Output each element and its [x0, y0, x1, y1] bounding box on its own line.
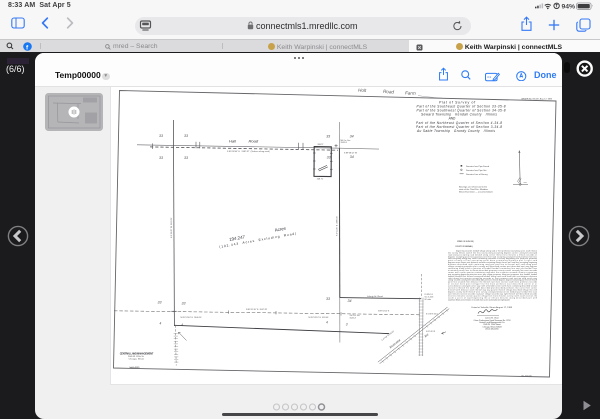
- svg-text:Denotes Iron Pipe Found: Denotes Iron Pipe Found: [466, 165, 490, 168]
- svg-text:Dated at Yorkville, Illinois: Dated at Yorkville, Illinois August 17, …: [472, 306, 513, 309]
- svg-text:4: 4: [326, 320, 328, 324]
- svg-text:33: 33: [184, 134, 188, 138]
- svg-text:33: 33: [184, 156, 188, 160]
- svg-text:Illinois East Zone — assumed d: Illinois East Zone — assumed datum: [459, 191, 493, 194]
- svg-text:STATE OF ILLINOIS ): STATE OF ILLINOIS ): [457, 240, 474, 243]
- svg-text:4: 4: [181, 323, 183, 327]
- svg-text:34: 34: [348, 299, 352, 303]
- svg-text:N 0°06'40" W 2643.36': N 0°06'40" W 2643.36': [171, 217, 173, 238]
- svg-text:33-35-8: 33-35-8: [341, 142, 347, 144]
- svg-text:COUNTY OF KENDALL ): COUNTY OF KENDALL ): [455, 245, 473, 248]
- svg-text:4: 4: [160, 321, 162, 325]
- svg-text:3: 3: [346, 323, 348, 327]
- svg-text:33: 33: [158, 301, 162, 305]
- svg-text:road more illinois acres minut: road more illinois acres minutes or seco…: [448, 298, 510, 301]
- svg-text:S 47°40' E 369.52': S 47°40' E 369.52': [381, 330, 395, 342]
- svg-text:CENTRAL LAND MANAGEMENT: CENTRAL LAND MANAGEMENT: [120, 351, 154, 355]
- svg-text:34-35-8: 34-35-8: [350, 317, 356, 319]
- svg-text:No. 83-105: No. 83-105: [522, 375, 533, 377]
- svg-text:Denotes Line of Survey: Denotes Line of Survey: [466, 173, 489, 176]
- svg-text:N 89°53'10" E: N 89°53'10" E: [378, 311, 390, 313]
- svg-text:34: 34: [350, 155, 354, 159]
- svg-text:34: 34: [350, 135, 354, 139]
- svg-text:208.71': 208.71': [317, 179, 324, 181]
- svg-text:Hall: Hall: [229, 138, 236, 143]
- svg-text:ORDER No. 83-105 Aug. 17, 198: ORDER No. 83-105 Aug. 17, 1983: [521, 98, 553, 101]
- svg-text:S 89°58'00" E 2687.87' (Sur: S 89°58'00" E 2687.87' (Surface along ro…: [227, 150, 270, 153]
- svg-text:Road: Road: [249, 139, 259, 144]
- svg-text:2049 W. 111th St.: 2049 W. 111th St.: [128, 355, 144, 358]
- svg-text:Seward Township Kendall Coun: Seward Township Kendall County Illinois: [421, 113, 497, 117]
- svg-text:N 89°53'10" E 493.06': N 89°53'10" E 493.06': [309, 317, 330, 319]
- svg-text:Road: Road: [383, 89, 395, 95]
- svg-text:Holt: Holt: [358, 88, 367, 93]
- svg-text:S 0°08' E 33.0': S 0°08' E 33.0': [426, 314, 438, 316]
- svg-text:33: 33: [327, 155, 331, 159]
- svg-text:Liberty St. Road: Liberty St. Road: [367, 295, 383, 298]
- svg-text:33: 33: [182, 301, 186, 305]
- svg-text:33: 33: [326, 297, 330, 301]
- svg-text:Order No. 83-105: Order No. 83-105: [129, 366, 140, 369]
- svg-text:33: 33: [159, 156, 163, 160]
- svg-text:(312) 445-4050: (312) 445-4050: [486, 329, 499, 331]
- svg-text:S 0°01'20" E 2489.06': S 0°01'20" E 2489.06': [337, 215, 339, 236]
- svg-text:33: 33: [326, 134, 330, 138]
- svg-text:N 89°51'40" E 2647.28': N 89°51'40" E 2647.28': [246, 309, 268, 311]
- svg-text:Au Sable Township Grundy Cou: Au Sable Township Grundy County Illinois: [416, 129, 495, 133]
- svg-text:208.71': 208.71': [318, 144, 325, 146]
- svg-text:Denotes Iron Pipe Set: Denotes Iron Pipe Set: [466, 169, 487, 172]
- svg-text:Farm: Farm: [405, 90, 416, 95]
- svg-text:66' wide: 66' wide: [425, 299, 432, 301]
- svg-text:Acres: Acres: [274, 226, 287, 233]
- svg-text:N 89°51'40" E 2446.30': N 89°51'40" E 2446.30': [181, 317, 203, 319]
- svg-text:33: 33: [159, 134, 163, 138]
- svg-text:Chicago, Illinois: Chicago, Illinois: [129, 359, 145, 361]
